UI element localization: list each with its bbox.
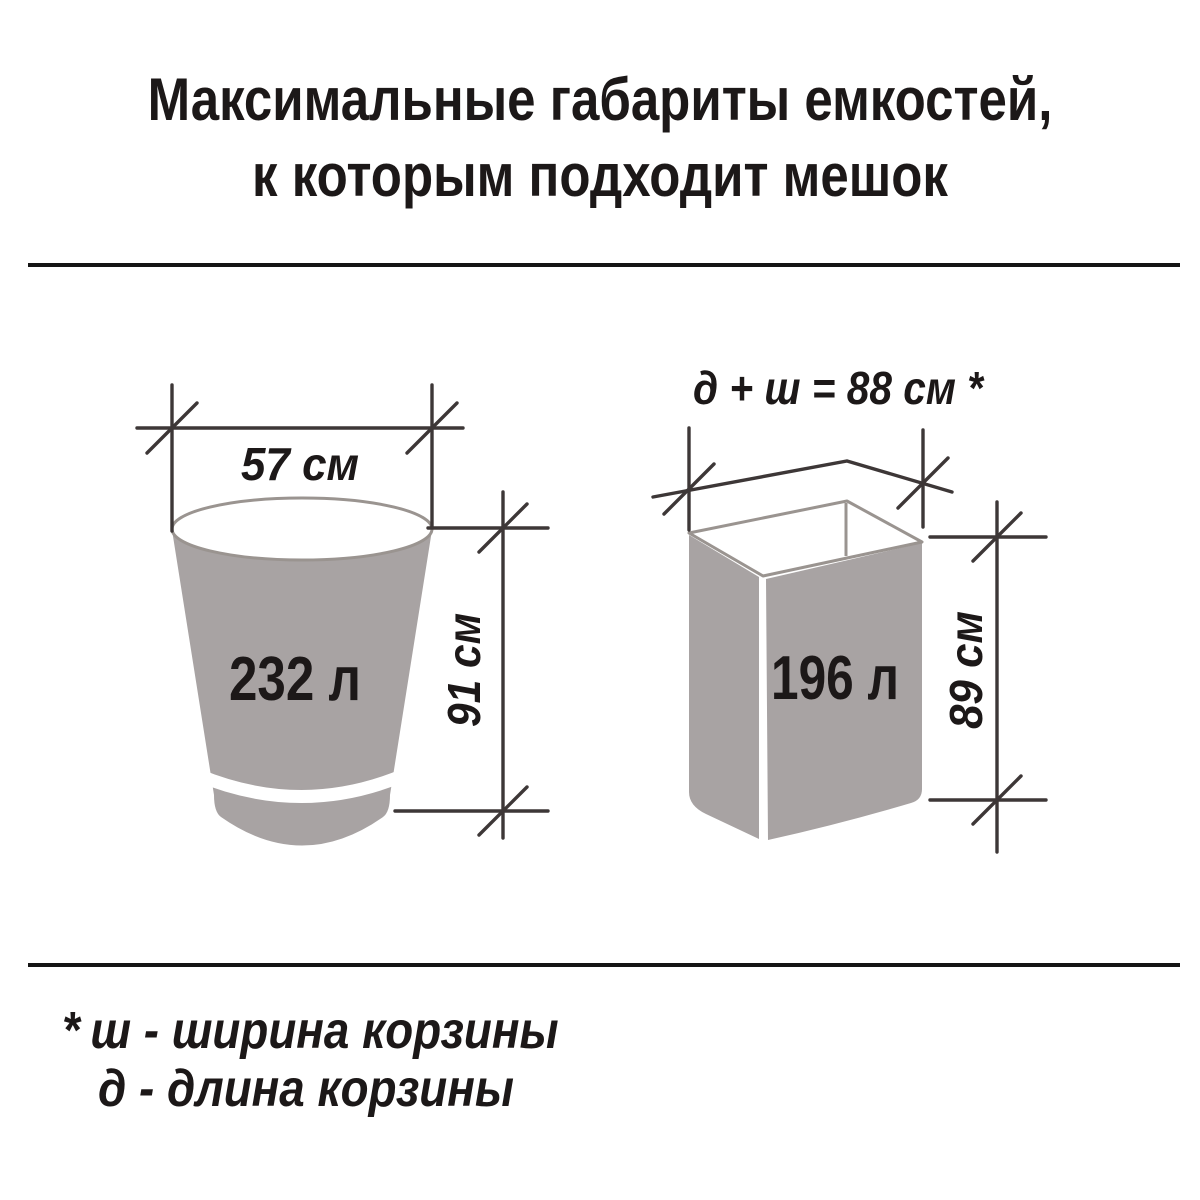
footnote: *ш - ширина корзины д - длина корзины <box>62 1002 626 1118</box>
box-top-dimension: д + ш = 88 см * <box>653 362 985 530</box>
bucket-rim <box>172 498 432 560</box>
infographic-page: Максимальные габариты емкостей, к которы… <box>0 0 1200 1200</box>
box-dimension-formula-label: д + ш = 88 см * <box>693 362 985 414</box>
footnote-length-definition: д - длина корзины <box>98 1060 514 1118</box>
bucket-height-label: 91 см <box>438 613 490 727</box>
box-height-dimension: 89 см <box>930 502 1046 852</box>
box-height-label: 89 см <box>940 611 992 729</box>
box-volume-label: 196 л <box>771 644 899 713</box>
footnote-width-definition: ш - ширина корзины <box>90 1002 558 1060</box>
footnote-line-2: д - длина корзины <box>98 1060 563 1118</box>
bucket-volume-label: 232 л <box>229 645 361 714</box>
bottom-divider-line <box>28 963 1180 967</box>
bucket-width-label: 57 см <box>241 438 359 490</box>
box-diagram: 196 л д + ш = 88 см * 89 см <box>653 362 1046 852</box>
footnote-line-1: *ш - ширина корзины <box>62 1002 559 1060</box>
box-left-face <box>689 535 759 839</box>
footnote-asterisk: * <box>62 1002 80 1060</box>
bucket-diagram: 232 л 57 см 91 см <box>137 385 548 846</box>
